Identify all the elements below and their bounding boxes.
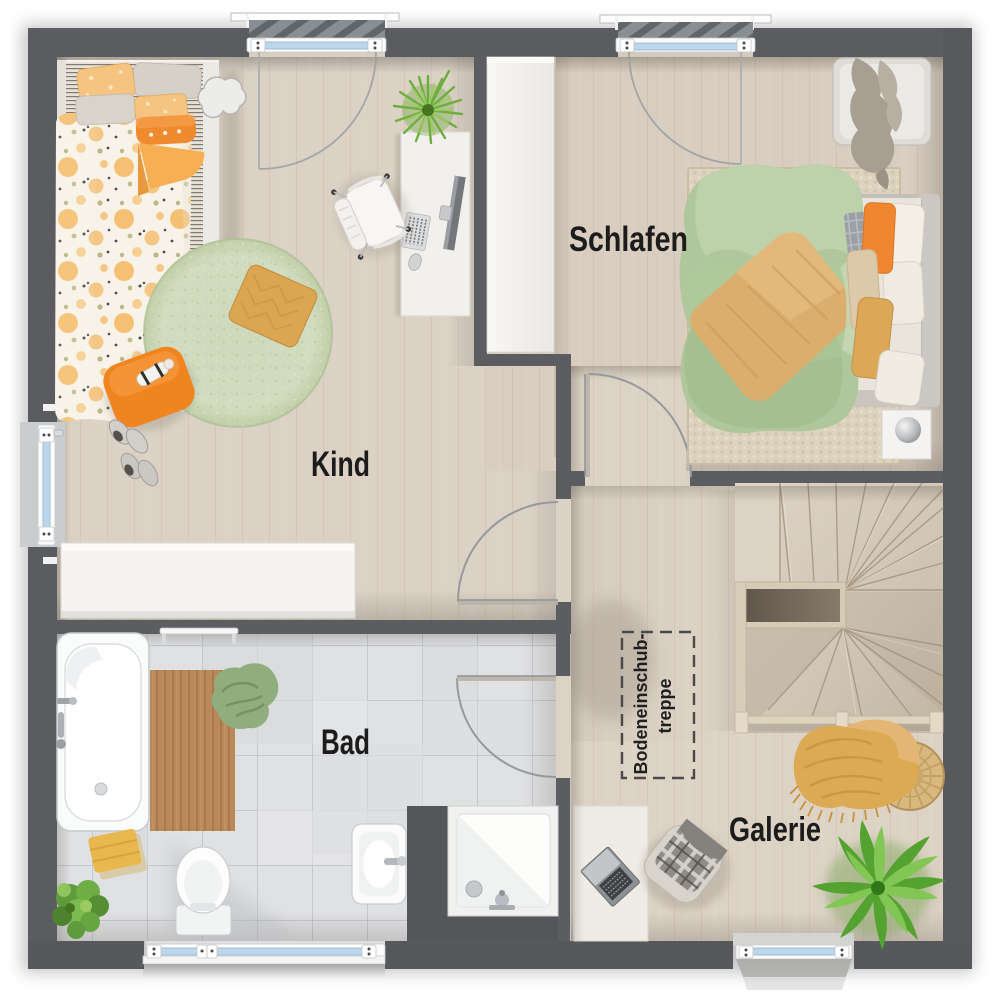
svg-text:Bad: Bad [321,723,370,762]
svg-text:Kind: Kind [311,445,370,484]
svg-text:treppe: treppe [655,678,675,733]
svg-text:Galerie: Galerie [729,811,821,849]
svg-text:Schlafen: Schlafen [569,220,688,259]
svg-text:Bodeneinschub-: Bodeneinschub- [631,633,651,774]
